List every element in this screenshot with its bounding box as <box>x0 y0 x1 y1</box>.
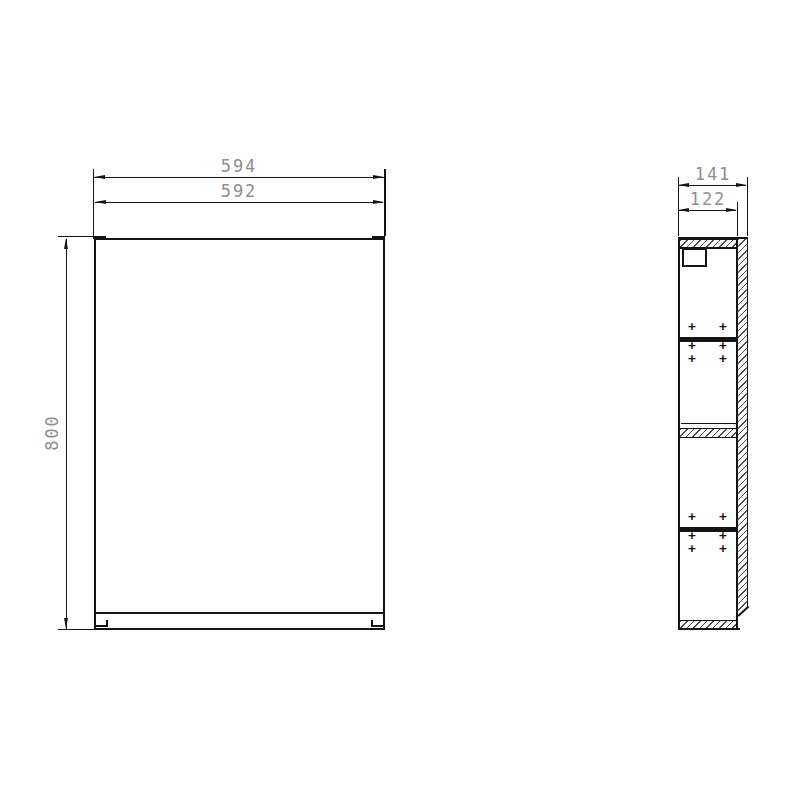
screw-marker: + <box>688 510 696 523</box>
fixed-shelf-section <box>680 428 737 438</box>
technical-drawing-canvas: 594 592 800 141 <box>0 0 800 800</box>
bottom-panel-section <box>680 620 736 628</box>
shelf-edge-line <box>681 423 736 424</box>
side-view: 141 122 + + + + <box>0 0 800 800</box>
dim-label-side-depth-outer: 141 <box>676 165 750 184</box>
back-panel-section <box>738 239 747 616</box>
back-panel-outer-line <box>747 239 748 608</box>
screw-marker: + <box>719 542 727 555</box>
hanger-bracket <box>682 248 707 267</box>
dim-arrow-left-icon <box>678 183 689 187</box>
screw-marker: + <box>719 351 727 364</box>
screw-marker: + <box>719 320 727 333</box>
bottom-edge-line <box>678 628 741 631</box>
screw-marker: + <box>688 542 696 555</box>
dim-arrow-left-icon <box>678 208 689 212</box>
dim-arrow-right-icon <box>726 208 737 212</box>
screw-marker: + <box>719 528 727 541</box>
screw-marker: + <box>688 320 696 333</box>
dim-label-side-depth-inner: 122 <box>678 190 738 209</box>
dim-arrow-right-icon <box>736 183 747 187</box>
screw-marker: + <box>719 510 727 523</box>
screw-marker: + <box>688 351 696 364</box>
screw-marker: + <box>688 528 696 541</box>
